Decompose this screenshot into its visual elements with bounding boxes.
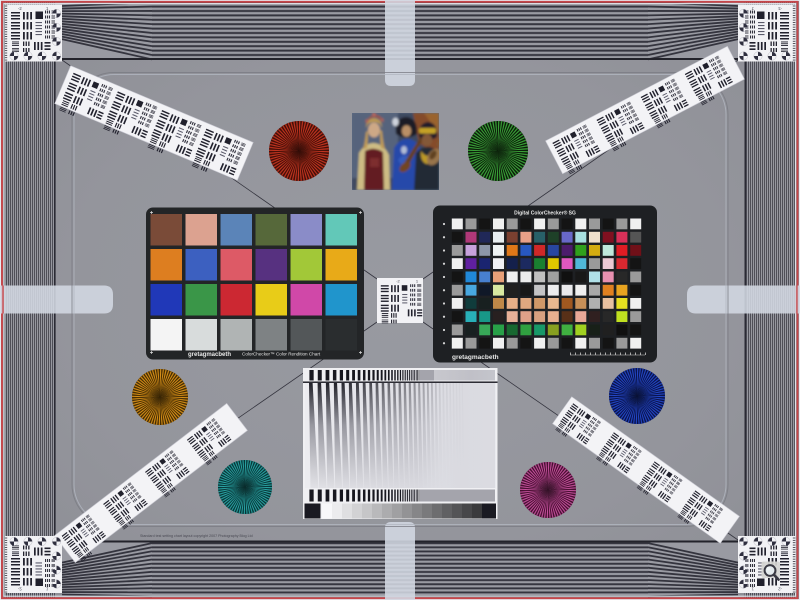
- svg-text:gretagmacbeth: gretagmacbeth: [188, 352, 231, 358]
- svg-text:gretagmacbeth: gretagmacbeth: [452, 354, 499, 361]
- svg-text:Digital ColorChecker® SG: Digital ColorChecker® SG: [514, 210, 576, 217]
- svg-text:ColorChecker™ Color Rendition: ColorChecker™ Color Rendition Chart: [242, 352, 321, 357]
- svg-text:Standard test setting chart la: Standard test setting chart layout copyr…: [140, 534, 253, 538]
